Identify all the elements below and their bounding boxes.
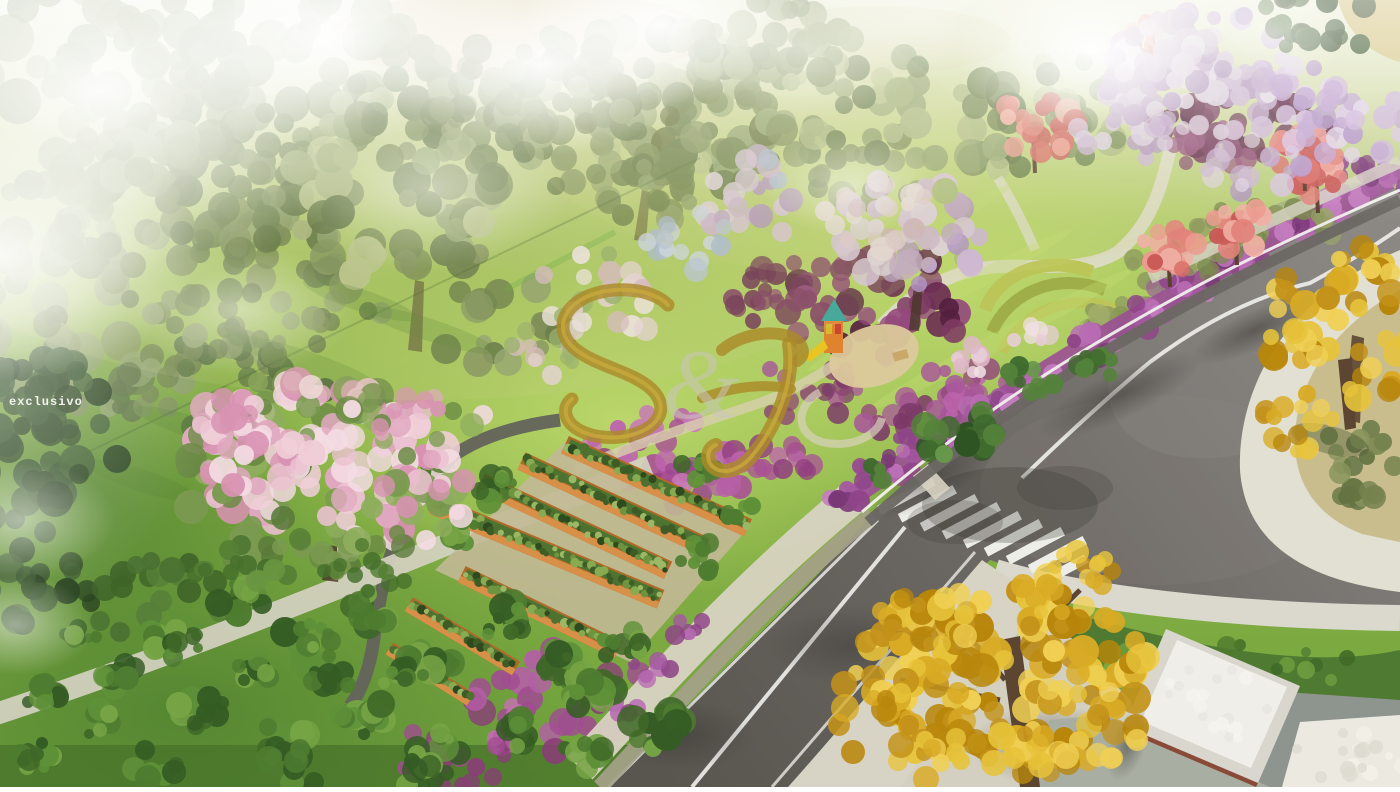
svg-text:exclusivo: exclusivo [9,395,83,409]
svg-text:&: & [662,329,740,440]
